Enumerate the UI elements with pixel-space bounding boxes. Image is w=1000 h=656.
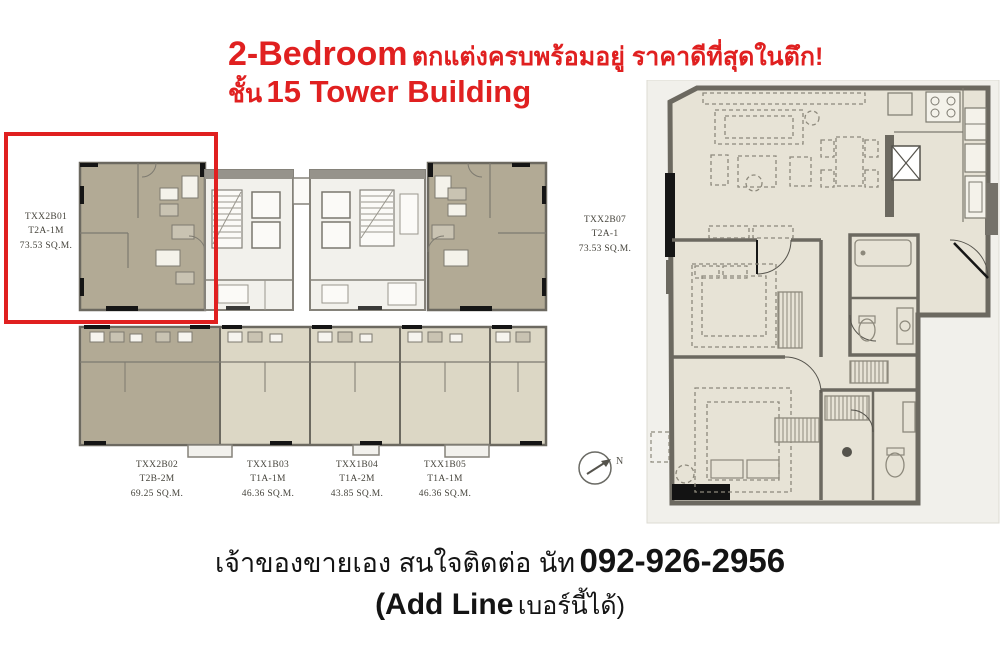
add-line-text: (Add Line (375, 588, 513, 621)
listing-page: 2-Bedroom ตกแต่งครบพร้อมอยู่ ราคาดีที่สุ… (0, 0, 1000, 656)
floor-english-text: 15 Tower Building (267, 74, 532, 109)
unit-area: 73.53 SQ.M. (2, 239, 90, 253)
unit-id: TXX1B05 (395, 458, 495, 472)
contact-line1: เจ้าของขายเอง สนใจติดต่อ นัท 092-926-295… (0, 541, 1000, 584)
unit-area: 43.85 SQ.M. (307, 487, 407, 501)
north-compass: N (579, 452, 623, 484)
unit-id: TXX2B07 (555, 213, 655, 227)
title-bedroom-text: 2-Bedroom (228, 35, 407, 73)
building-core-left (205, 170, 293, 310)
title-thai-text: ตกแต่งครบพร้อมอยู่ ราคาดีที่สุดในตึก! (412, 43, 823, 71)
floor-thai-text: ชั้น (228, 80, 262, 108)
service-shaft (985, 183, 998, 235)
wardrobe (778, 292, 802, 348)
unit-type: T2A-1M (2, 224, 90, 238)
unit-detail-plan (645, 80, 1000, 525)
unit-id: TXX2B01 (2, 210, 90, 224)
unit-label-2b02: TXX2B02 T2B-2M 69.25 SQ.M. (107, 458, 207, 501)
phone-number: 092-926-2956 (580, 542, 786, 579)
contact-thai-text: เจ้าของขายเอง สนใจติดต่อ นัท (215, 548, 575, 578)
unit-label-2b07: TXX2B07 T2A-1 73.53 SQ.M. (555, 213, 655, 256)
compass-n-label: N (616, 456, 623, 467)
unit-area: 69.25 SQ.M. (107, 487, 207, 501)
unit-2b07-shape (428, 163, 546, 311)
unit-id: TXX1B04 (307, 458, 407, 472)
wall-panel (665, 173, 675, 257)
wardrobe (775, 418, 819, 442)
unit-id: TXX2B02 (107, 458, 207, 472)
building-core-right (310, 170, 425, 310)
core-connector (293, 178, 310, 204)
unit-type: T1A-1M (218, 472, 318, 486)
unit-type: T2A-1 (555, 227, 655, 241)
unit-type: T1A-1M (395, 472, 495, 486)
unit-type: T1A-2M (307, 472, 407, 486)
unit-label-2b01: TXX2B01 T2A-1M 73.53 SQ.M. (2, 210, 90, 253)
unit-area: 73.53 SQ.M. (555, 242, 655, 256)
unit-area: 46.36 SQ.M. (395, 487, 495, 501)
add-line-thai-text: เบอร์นี้ได้) (518, 592, 625, 620)
unit-id: TXX1B03 (218, 458, 318, 472)
unit-label-1b05: TXX1B05 T1A-1M 46.36 SQ.M. (395, 458, 495, 501)
contact-block: เจ้าของขายเอง สนใจติดต่อ นัท 092-926-295… (0, 541, 1000, 626)
title-line1: 2-Bedroom ตกแต่งครบพร้อมอยู่ ราคาดีที่สุ… (228, 34, 823, 74)
wall-panel (666, 260, 673, 294)
lower-units-strip (80, 325, 546, 457)
unit-area: 46.36 SQ.M. (218, 487, 318, 501)
unit-label-1b03: TXX1B03 T1A-1M 46.36 SQ.M. (218, 458, 318, 501)
contact-line2: (Add Line เบอร์นี้ได้) (0, 586, 1000, 626)
unit-type: T2B-2M (107, 472, 207, 486)
corridor-closet (850, 361, 888, 383)
unit-label-1b04: TXX1B04 T1A-2M 43.85 SQ.M. (307, 458, 407, 501)
